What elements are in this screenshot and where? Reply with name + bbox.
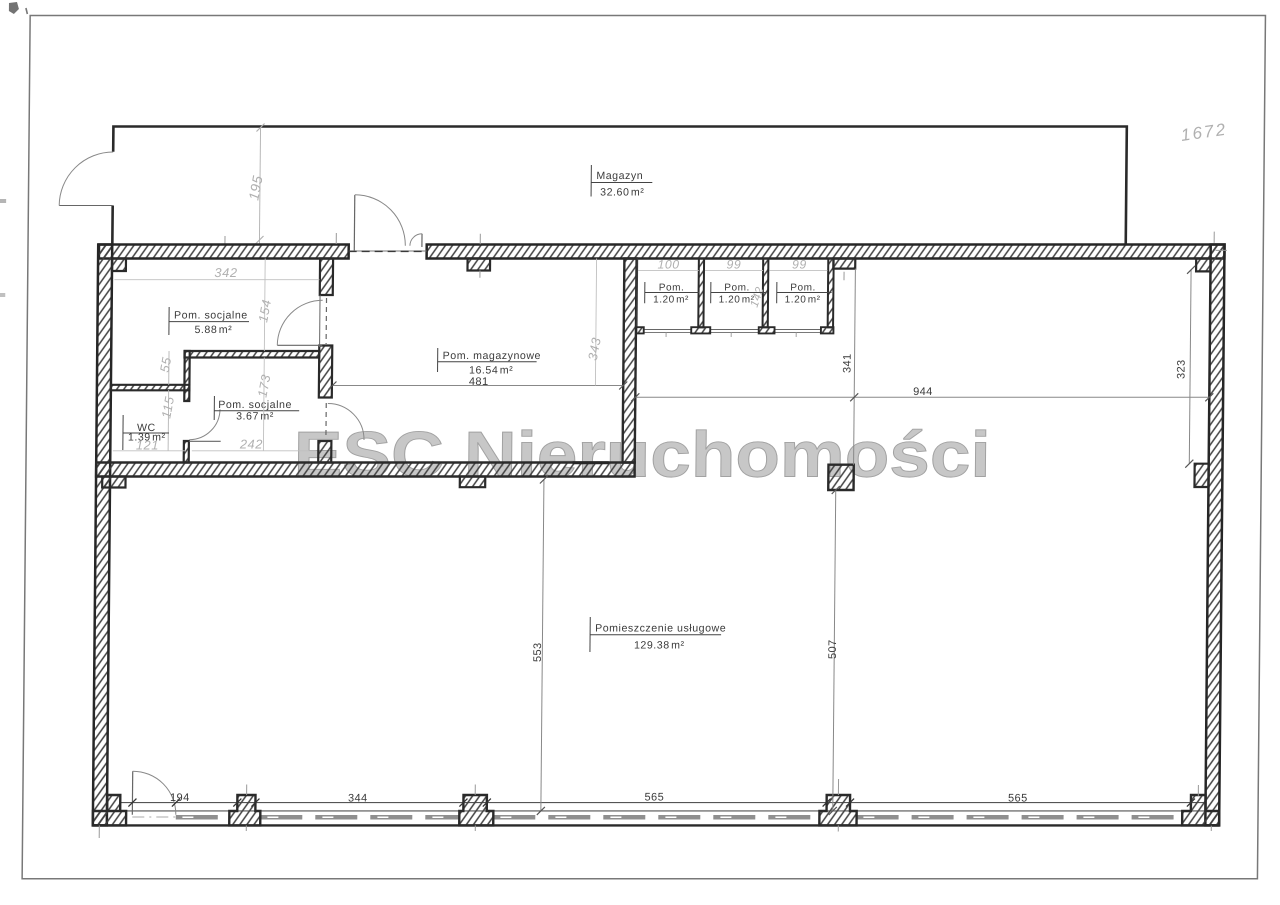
svg-text:129.38 m²: 129.38 m² [634,640,685,652]
svg-text:3.67 m²: 3.67 m² [236,411,274,423]
svg-text:Magazyn: Magazyn [596,170,643,182]
svg-text:Pom. socjalne: Pom. socjalne [174,310,248,322]
svg-text:115: 115 [158,395,177,420]
svg-text:242: 242 [239,437,263,452]
svg-text:99: 99 [726,258,741,272]
svg-text:Pom.: Pom. [790,282,816,293]
svg-text:32.60 m²: 32.60 m² [600,187,644,199]
svg-text:ESC Nieruchomości: ESC Nieruchomości [293,419,991,491]
svg-text:55: 55 [157,355,175,373]
svg-text:481: 481 [469,376,489,388]
svg-text:Pom.: Pom. [659,282,685,293]
svg-text:344: 344 [348,793,368,805]
svg-text:173: 173 [254,373,273,398]
svg-text:Pom. magazynowe: Pom. magazynowe [443,350,541,362]
svg-text:565: 565 [1008,793,1028,805]
svg-text:5.88 m²: 5.88 m² [194,324,232,336]
svg-text:Pom.: Pom. [724,282,750,293]
svg-text:343: 343 [585,336,604,361]
svg-text:565: 565 [645,792,665,804]
svg-text:944: 944 [913,386,933,398]
svg-text:341: 341 [842,353,854,373]
svg-text:195: 195 [245,174,265,202]
svg-text:99: 99 [792,258,807,272]
svg-text:121: 121 [136,438,159,453]
svg-text:Pomieszczenie usługowe: Pomieszczenie usługowe [595,623,726,635]
svg-text:16.54 m²: 16.54 m² [469,365,513,377]
svg-text:1.20 m²: 1.20 m² [785,295,821,306]
svg-text:194: 194 [170,792,190,804]
svg-text:507: 507 [827,639,839,659]
svg-text:Pom. socjalne: Pom. socjalne [218,399,292,411]
svg-text:553: 553 [532,642,544,662]
svg-text:100: 100 [657,258,679,272]
svg-text:342: 342 [214,265,237,280]
svg-text:154: 154 [255,298,274,323]
svg-text:1.20 m²: 1.20 m² [653,295,689,306]
svg-text:1.20 m²: 1.20 m² [719,295,755,306]
svg-text:323: 323 [1175,359,1187,379]
svg-text:1672: 1672 [1180,120,1229,145]
